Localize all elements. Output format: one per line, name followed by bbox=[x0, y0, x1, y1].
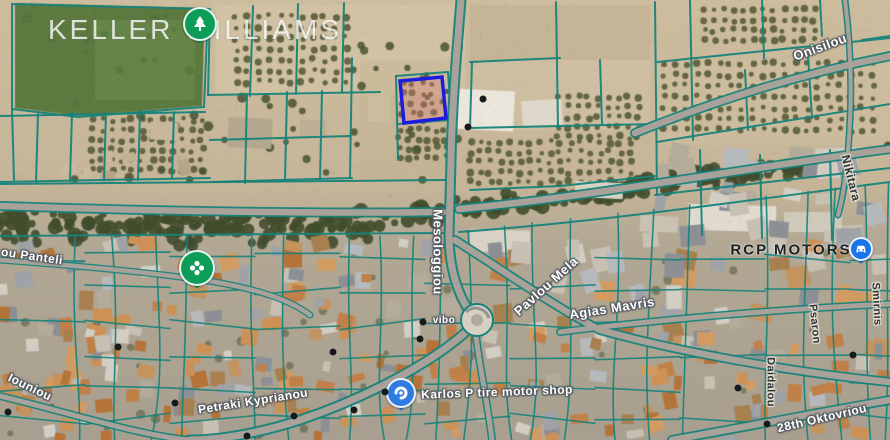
poi-dot[interactable] bbox=[330, 349, 337, 356]
poi-dot[interactable] bbox=[420, 319, 427, 326]
tire-shop-pin[interactable] bbox=[386, 378, 416, 408]
tire-swirl-icon bbox=[392, 384, 410, 402]
flower-icon bbox=[187, 258, 207, 278]
park-tree-pin-circle bbox=[183, 7, 217, 41]
poi-dot[interactable] bbox=[115, 344, 122, 351]
garden-flower-pin-circle bbox=[179, 250, 215, 286]
poi-dot[interactable] bbox=[480, 96, 487, 103]
poi-dot[interactable] bbox=[382, 389, 389, 396]
poi-dot[interactable] bbox=[465, 124, 472, 131]
car-service-poi-circle bbox=[849, 237, 873, 261]
car-service-poi[interactable] bbox=[849, 237, 873, 261]
satellite-map[interactable]: OnisilouMesologgiouPavlou MelaAgias Mavr… bbox=[0, 0, 890, 440]
poi-dot[interactable] bbox=[417, 336, 424, 343]
poi-dot[interactable] bbox=[172, 400, 179, 407]
poi-dot[interactable] bbox=[351, 407, 358, 414]
map-markers-layer bbox=[0, 0, 890, 440]
park-tree-pin[interactable] bbox=[183, 7, 217, 41]
poi-dot[interactable] bbox=[291, 413, 298, 420]
car-icon bbox=[854, 242, 868, 256]
poi-dot[interactable] bbox=[735, 385, 742, 392]
poi-dot[interactable] bbox=[244, 433, 251, 440]
poi-dot[interactable] bbox=[764, 421, 771, 428]
tree-icon bbox=[191, 15, 209, 33]
poi-dot[interactable] bbox=[850, 352, 857, 359]
tire-shop-pin-circle bbox=[386, 378, 416, 408]
garden-flower-pin[interactable] bbox=[179, 250, 215, 286]
poi-dot[interactable] bbox=[5, 409, 12, 416]
